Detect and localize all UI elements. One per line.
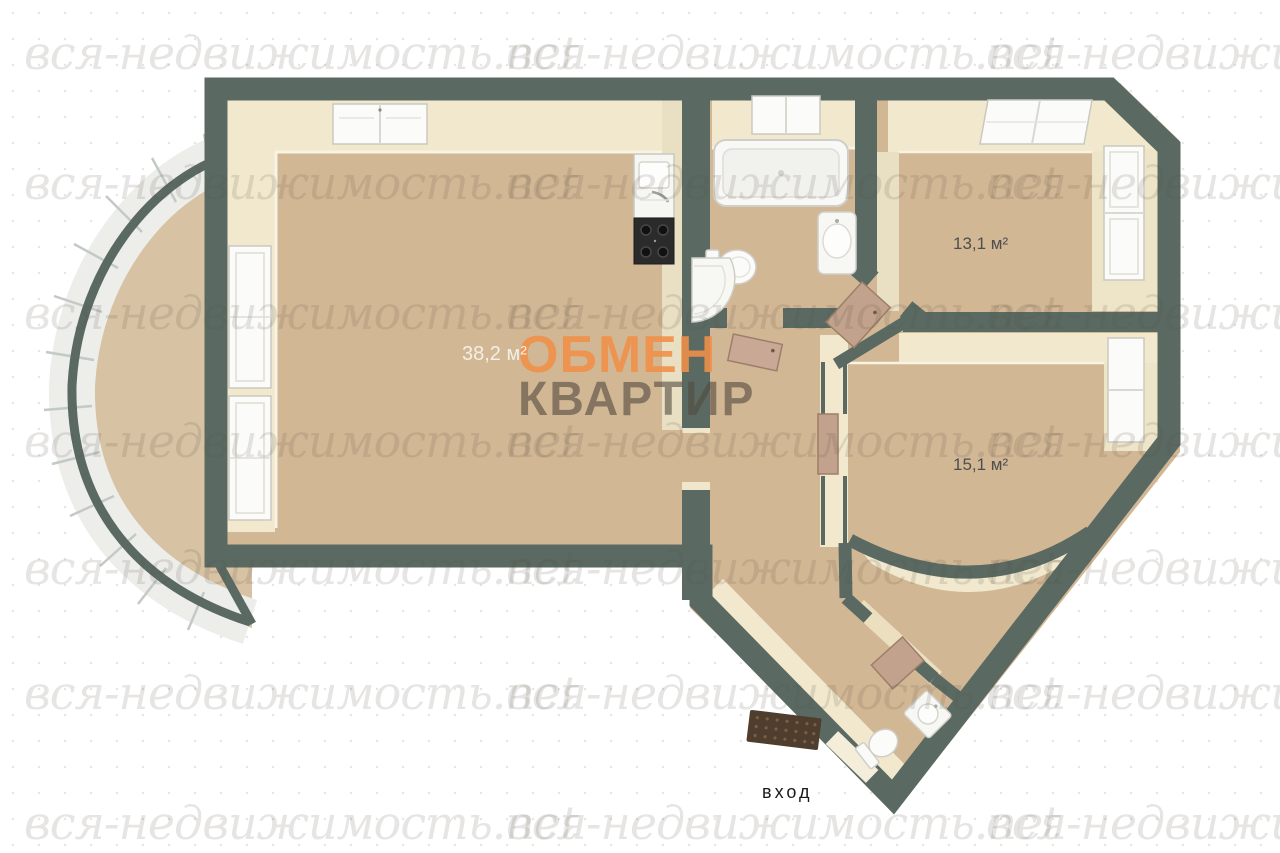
- door-room15: [818, 414, 838, 474]
- window-room15: [1108, 338, 1144, 442]
- window-left-lower: [229, 396, 271, 520]
- stove: [634, 218, 674, 264]
- window-bedroom-top: [980, 100, 1092, 144]
- bathtub: [714, 140, 848, 206]
- window-bathroom: [752, 96, 820, 134]
- pedestal-sink: [818, 212, 856, 274]
- window-bedroom-right: [1104, 146, 1144, 280]
- kitchen-sink: [634, 154, 674, 218]
- window-top: [333, 104, 427, 144]
- window-left-upper: [229, 246, 271, 388]
- floorplan-page: вся-недвижимость.net вся-недвижимость.ne…: [0, 0, 1280, 853]
- floor-plan: [0, 0, 1280, 853]
